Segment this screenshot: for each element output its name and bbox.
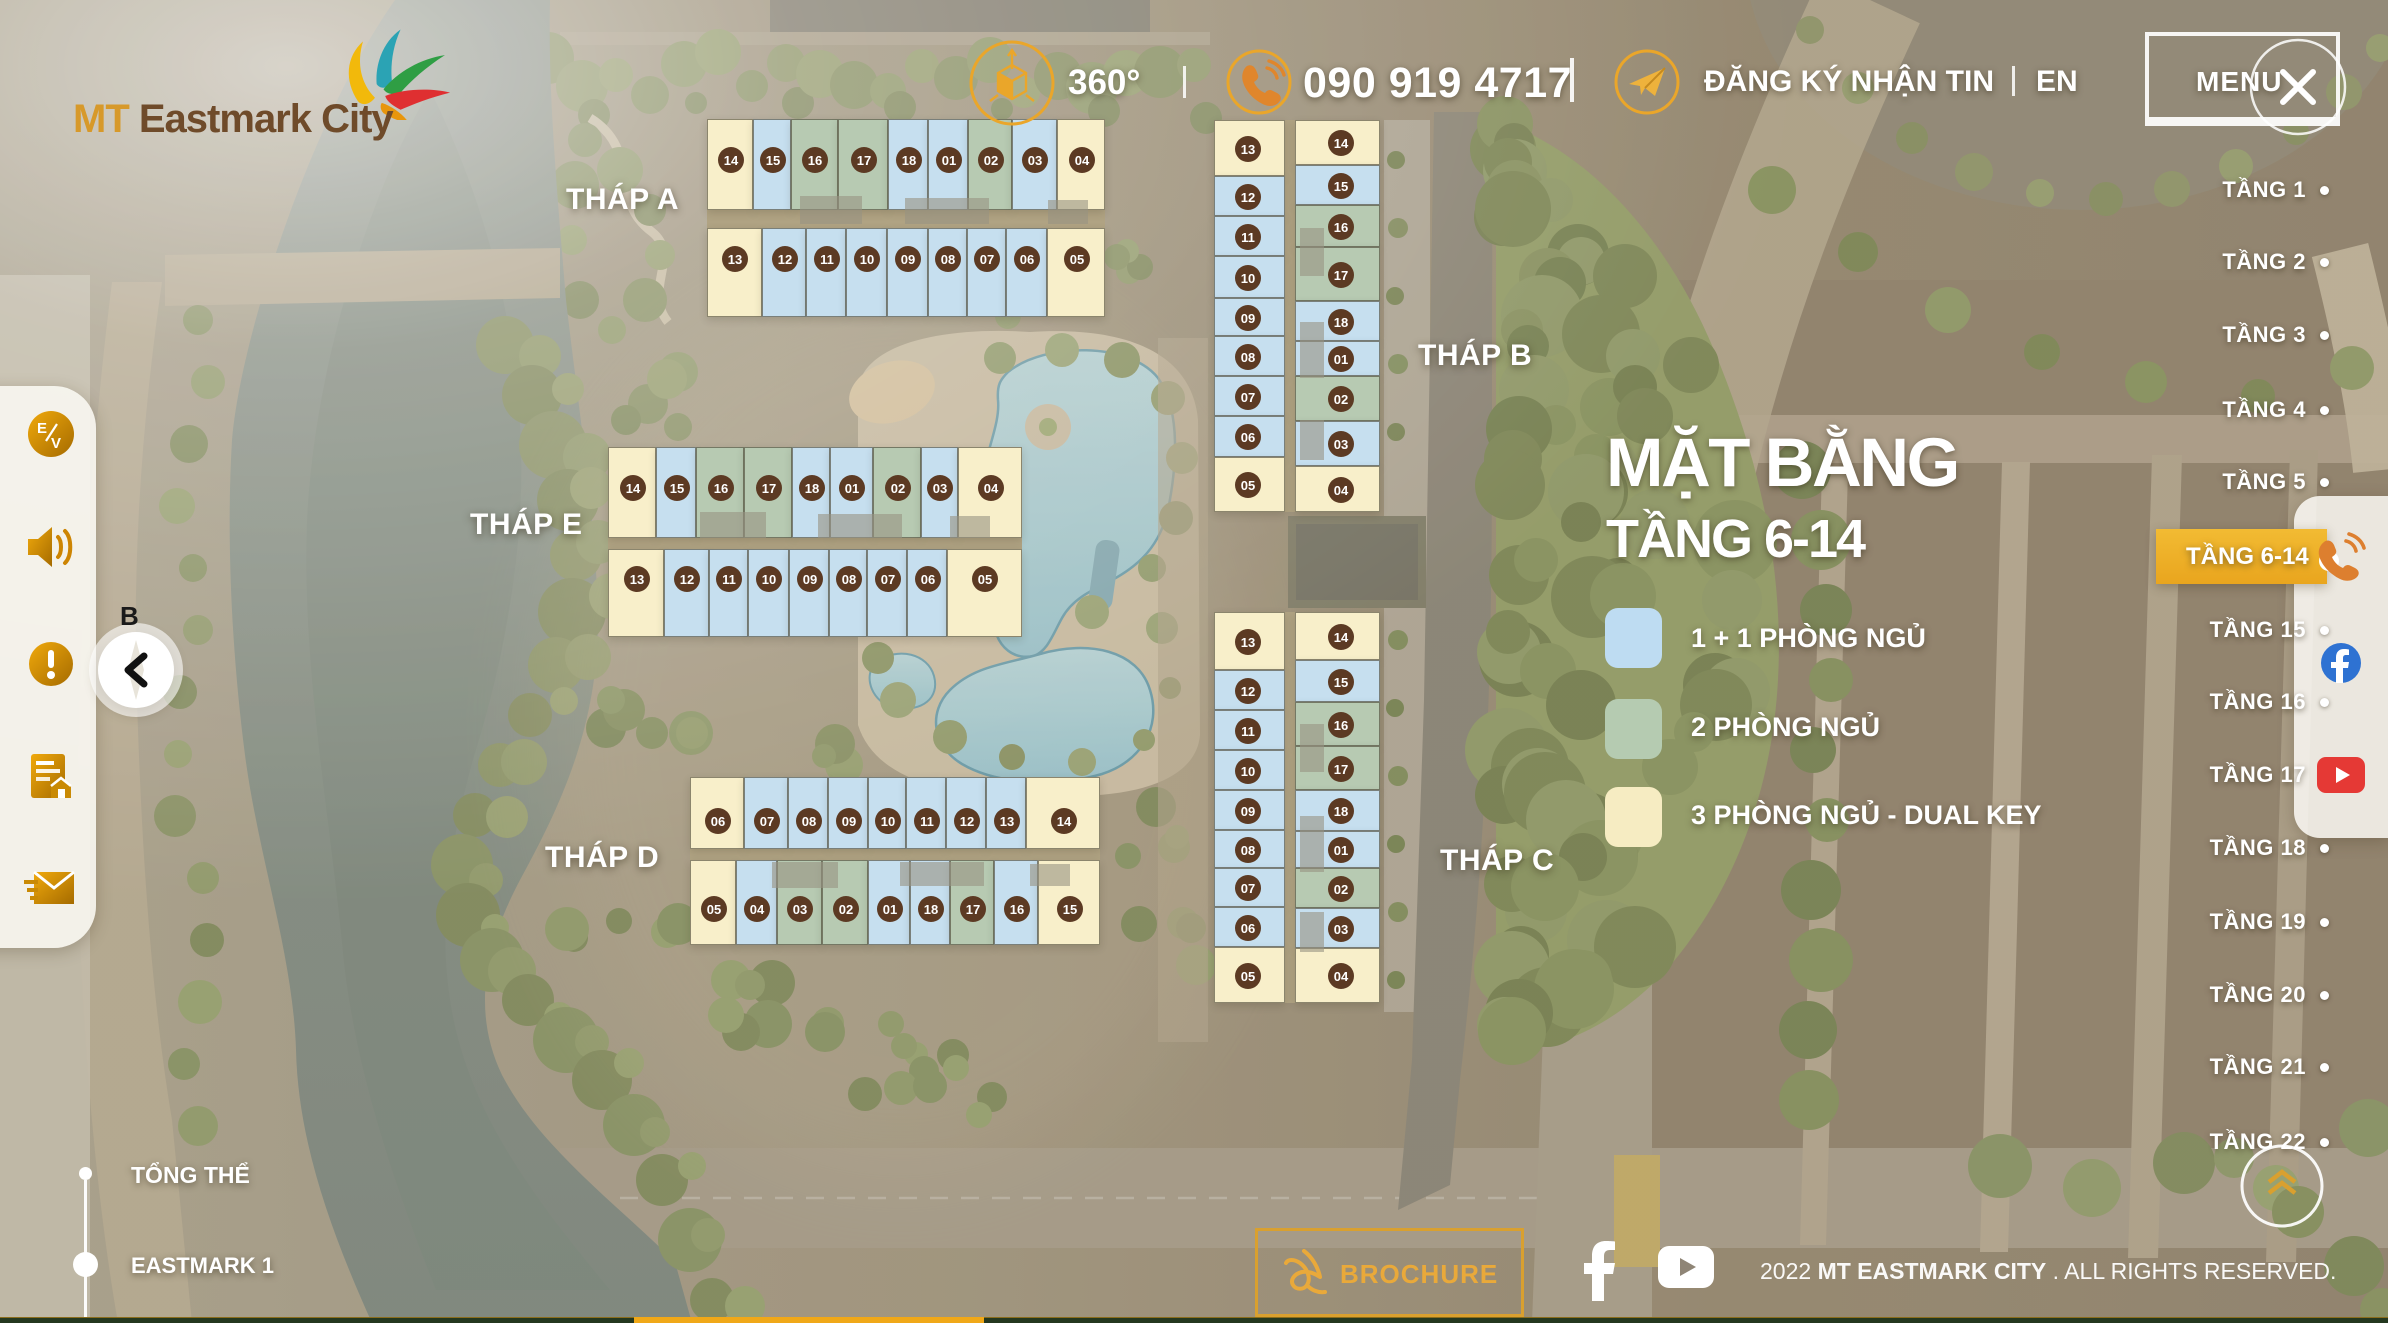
svg-text:V: V [51,435,61,452]
svg-text:E: E [37,420,47,437]
